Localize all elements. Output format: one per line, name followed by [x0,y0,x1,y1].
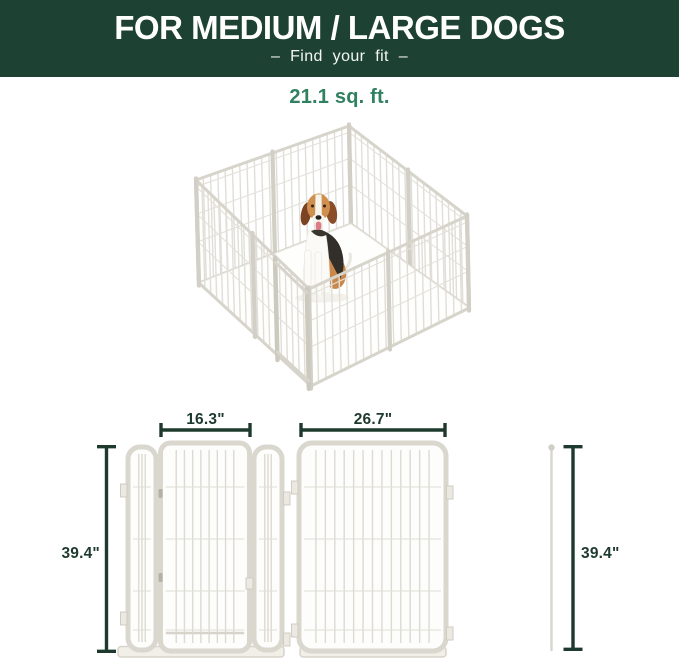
dim-label-pole-height: 39.4" [581,545,620,562]
dim-label-door-height: 39.4" [61,545,100,562]
playpen-3d-view [150,108,500,400]
banner-subtitle: – Find your fit – [0,48,679,66]
dimension-diagram: 39.4" 16.3" 26.7" 39.4" [0,395,679,659]
banner-title: FOR MEDIUM / LARGE DOGS [0,0,679,45]
diagram-panels [118,443,453,657]
header-banner: FOR MEDIUM / LARGE DOGS – Find your fit … [0,0,679,77]
dim-door-height: 39.4" [61,445,116,653]
dimension-diagram-svg: 39.4" 16.3" 26.7" 39.4" [0,395,679,659]
dim-door-width: 16.3" [161,411,250,437]
dim-label-door-width: 16.3" [186,411,225,428]
dim-panel-width: 26.7" [301,411,445,437]
connector-rod [548,444,554,651]
playpen-isometric-illustration [150,108,500,400]
dim-pole-height: 39.4" [564,445,620,651]
dim-label-panel-width: 26.7" [354,411,393,428]
area-size-label: 21.1 sq. ft. [0,86,679,109]
